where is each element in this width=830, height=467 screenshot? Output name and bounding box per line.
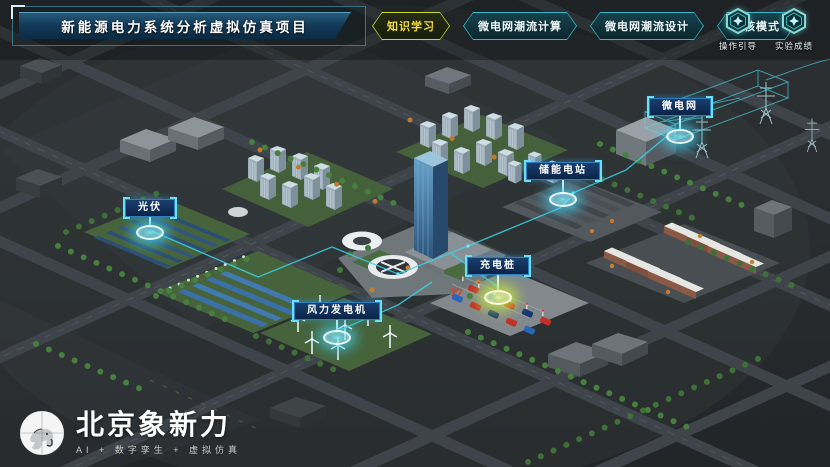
tab-knowledge-learning[interactable]: 知识学习 bbox=[372, 12, 450, 40]
hotspot-stem bbox=[679, 116, 681, 129]
app-window: 新能源电力系统分析虚拟仿真项目 知识学习 微电网潮流计算 微电网潮流设计 考核模… bbox=[0, 0, 830, 467]
operation-guide-label: 操作引导 bbox=[714, 40, 762, 52]
title-frame: 新能源电力系统分析虚拟仿真项目 bbox=[12, 6, 366, 46]
hotspot-charging-marker[interactable] bbox=[484, 290, 512, 305]
hotspot-microgrid-label: 微电网 bbox=[649, 98, 711, 116]
experiment-score-button[interactable]: 实验成绩 bbox=[770, 8, 818, 52]
hotspot-stem bbox=[336, 320, 338, 330]
hotspot-pv-label: 光伏 bbox=[125, 199, 175, 217]
hotspot-charging[interactable]: 充电桩 bbox=[467, 255, 529, 305]
elephant-logo-icon bbox=[18, 409, 66, 457]
hotspot-microgrid[interactable]: 微电网 bbox=[649, 96, 711, 144]
hotspot-pv-marker[interactable] bbox=[136, 225, 164, 240]
hotspot-stem bbox=[562, 180, 564, 192]
hotspot-storage-label: 储能电站 bbox=[526, 162, 600, 180]
hotspot-charging-label: 充电桩 bbox=[467, 257, 529, 275]
hotspot-stem bbox=[149, 217, 151, 225]
tab-power-flow-calculation-label: 微电网潮流计算 bbox=[464, 13, 576, 39]
brand-name: 北京象新力 bbox=[76, 410, 241, 441]
hotspot-wind-label: 风力发电机 bbox=[294, 302, 380, 320]
tab-microgrid-power-flow-design[interactable]: 微电网潮流设计 bbox=[590, 12, 704, 40]
hotspot-stem bbox=[497, 275, 499, 290]
hexagon-star-icon bbox=[782, 8, 806, 34]
page-title: 新能源电力系统分析虚拟仿真项目 bbox=[19, 12, 351, 39]
operation-guide-button[interactable]: 操作引导 bbox=[714, 8, 762, 52]
hotspot-storage[interactable]: 储能电站 bbox=[526, 160, 600, 207]
tab-microgrid-power-flow-calculation[interactable]: 微电网潮流计算 bbox=[463, 12, 577, 40]
hexagon-star-icon bbox=[726, 8, 750, 34]
experiment-score-label: 实验成绩 bbox=[770, 40, 818, 52]
hotspot-pv[interactable]: 光伏 bbox=[125, 197, 175, 240]
tab-knowledge-learning-label: 知识学习 bbox=[373, 13, 449, 39]
tab-power-flow-design-label: 微电网潮流设计 bbox=[591, 13, 703, 39]
header-actions: 操作引导 实验成绩 bbox=[714, 8, 818, 52]
brand-block: 北京象新力 AI + 数字孪生 + 虚拟仿真 bbox=[18, 409, 241, 457]
hotspot-microgrid-marker[interactable] bbox=[666, 129, 694, 144]
hotspot-wind[interactable]: 风力发电机 bbox=[294, 300, 380, 345]
hotspot-storage-marker[interactable] bbox=[549, 192, 577, 207]
hotspot-wind-marker[interactable] bbox=[323, 330, 351, 345]
brand-tagline: AI + 数字孪生 + 虚拟仿真 bbox=[76, 443, 241, 456]
